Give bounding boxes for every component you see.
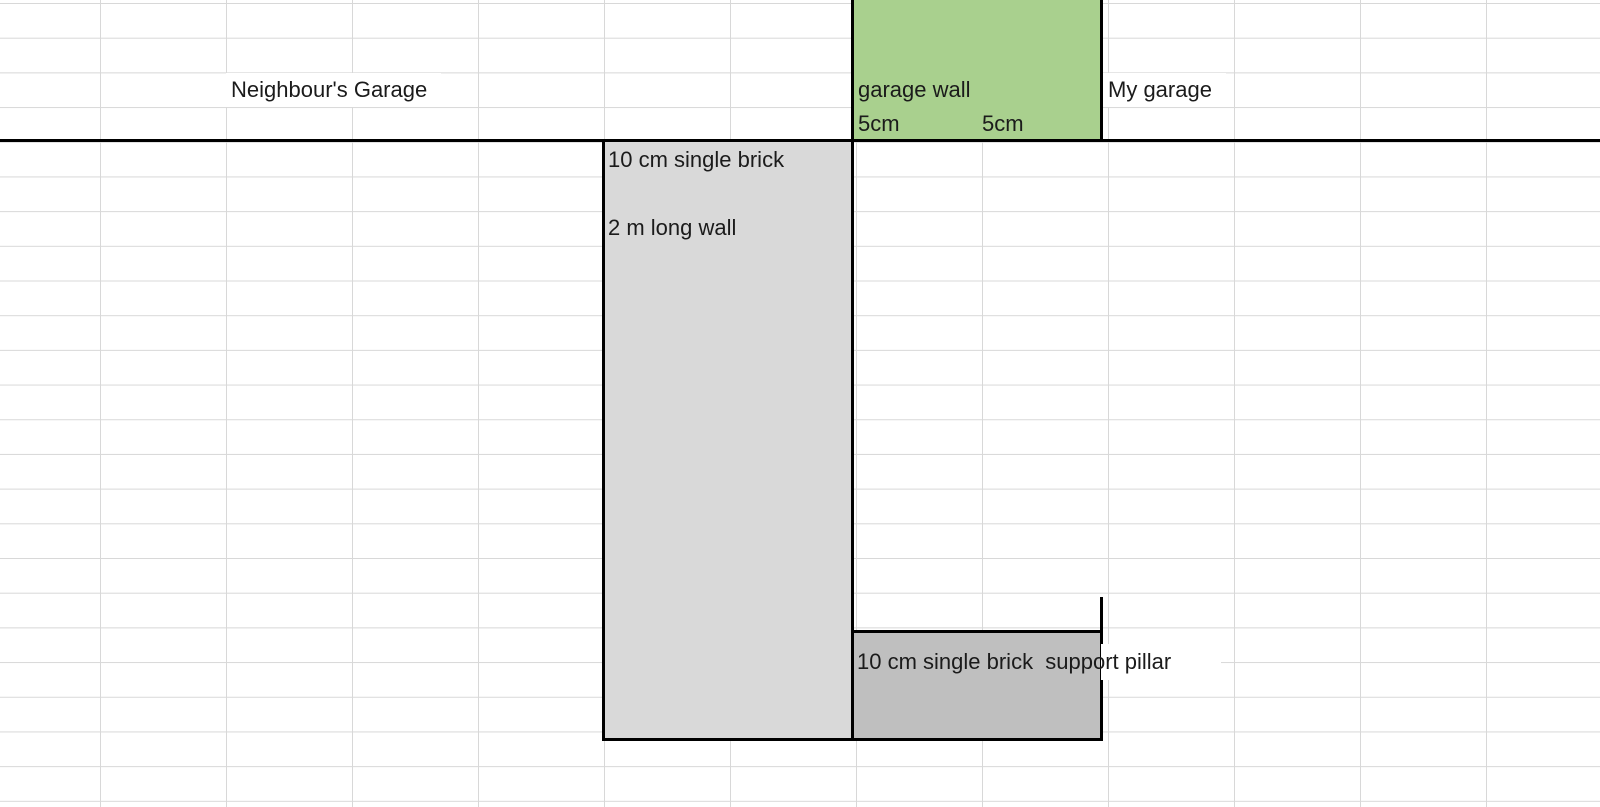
- spreadsheet-canvas[interactable]: Neighbour's Garage garage wall My garage…: [0, 0, 1600, 807]
- neighbours-garage-label: Neighbour's Garage: [226, 73, 441, 107]
- dimension-5cm-right-label: 5cm: [982, 107, 1024, 140]
- garage-wall-label: garage wall: [858, 73, 971, 107]
- my-garage-label: My garage: [1103, 73, 1226, 107]
- pillar-corner-line: [1100, 597, 1103, 633]
- wall-brick-label: 10 cm single brick: [608, 143, 784, 177]
- support-pillar-label: 10 cm single brick support pillar: [857, 644, 1221, 680]
- dimension-5cm-left-label: 5cm: [858, 107, 900, 140]
- wall-length-label: 2 m long wall: [608, 211, 736, 245]
